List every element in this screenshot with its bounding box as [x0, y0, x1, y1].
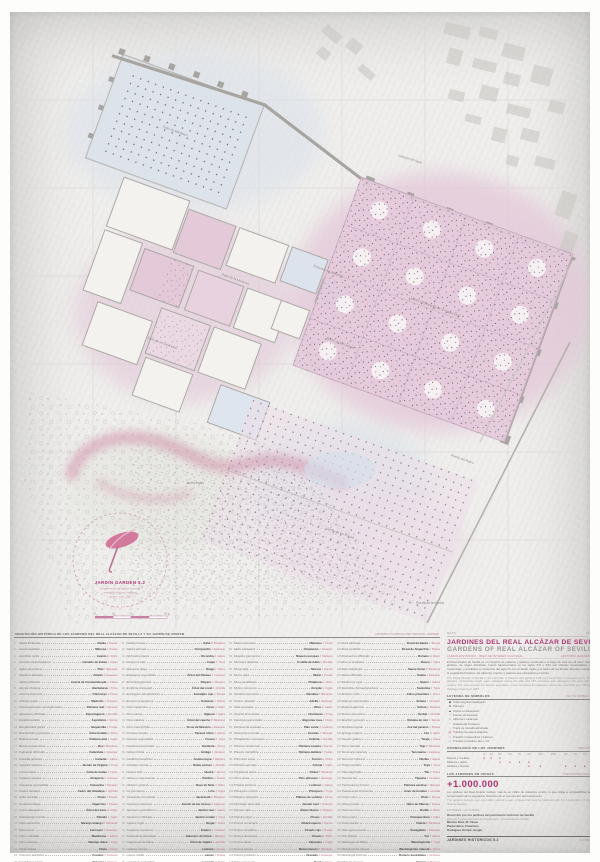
species-lists: VEGETACIÓN HISTÓRICA DE LOS JARDINES DEL… — [12, 632, 442, 850]
visitors-caption-es: Los jardines del Real Alcázar reciben má… — [447, 791, 590, 798]
info-panel: MAPA 05 JARDINES DEL REAL ALCÁZAR DE SEV… — [447, 632, 590, 851]
poster-subtitle: JARDÍN HISTÓRICO · BIEN DE INTERÉS CULTU… — [447, 655, 590, 660]
poster-title-es: JARDINES DEL REAL ALCÁZAR DE SEVILLA — [447, 639, 590, 646]
species-row: 75.Lavandula angustifoliaLavanda H. Reti… — [122, 858, 226, 862]
svg-text:vegetación histórica y trazado: vegetación histórica y trazados — [104, 592, 138, 595]
pond — [304, 452, 376, 488]
legend-title-es: LEYENDA DE SÍMBOLOS — [447, 694, 490, 698]
panel-kicker: MAPA 05 — [447, 632, 590, 637]
svg-text:Puerta de la Alcoba: Puerta de la Alcoba — [416, 601, 444, 605]
credits-label: AUTORES / AUTHORS — [447, 809, 590, 812]
species-column: 41.Dahlia pinnataDalia P. Banderas42.Dat… — [122, 640, 226, 862]
species-row: 35.Cordyline australisDrácena J. Marqués — [14, 858, 118, 862]
chronology-title-es: CRONOLOGÍA DE LOS JARDINES — [447, 746, 505, 750]
svg-text:los jardines del real alcázar: los jardines del real alcázar de sevilla — [100, 588, 140, 591]
svg-text:50 m: 50 m — [164, 612, 170, 616]
species-column: 1.Abelia floribundaAbelia J. Damas2.Acac… — [14, 640, 118, 862]
species-row: 115.Pyrus communisPeral J. Galera — [229, 858, 333, 862]
legend-title-en: KEY TO SYMBOLS — [567, 695, 590, 698]
legend-item-label: Trazado romántico del s. XX — [453, 739, 489, 743]
svg-text:Jardín Inglés: Jardín Inglés — [186, 481, 205, 485]
visitors-caption-en: The gardens receive over one million vis… — [447, 799, 590, 806]
paper-sheet: Patio de Banderas Patio de la Montería P… — [10, 12, 590, 853]
subtitle-left: JARDÍN HISTÓRICO · BIEN DE INTERÉS CULTU… — [447, 655, 523, 658]
legend-items: ■Árbol singular catalogado●Palmera▲Cipré… — [447, 700, 590, 743]
species-row: 155.Wisteria sinensisGlicinia J. Marqués — [337, 858, 441, 862]
svg-text:Callejón del Agua: Callejón del Agua — [398, 154, 423, 165]
visitors-header: LOS JARDINES EN CIFRAS VISITORS PER YEAR — [447, 772, 590, 778]
species-column: 121.Rosa banksiaeRosal de Banks J. Damas… — [337, 640, 441, 862]
legend-item: ▨Trazado romántico del s. XX — [447, 739, 590, 743]
species-column: 81.Malus domesticaManzano J. Flores82.Me… — [229, 640, 333, 862]
credits-name: Rodríguez Gómez, Sergio — [447, 829, 590, 833]
visitors-figure: +1.000.000 — [447, 779, 590, 790]
panel-footer: JARDINES HISTÓRICOS 5.2 E 1:800 — [447, 836, 590, 842]
subtitle-right: HISTORIC GARDEN — [561, 655, 590, 658]
legend-header: LEYENDA DE SÍMBOLOS KEY TO SYMBOLS — [447, 694, 590, 700]
chronology-row: Jardines y huertas·····●●·●●● — [447, 764, 590, 768]
chronology-table: XIXIIXIIIXIVXVXVIXVIIXVIIIXIXXXXXIRecint… — [447, 753, 590, 768]
species-header-es: VEGETACIÓN HISTÓRICA DE LOS JARDINES DEL… — [15, 632, 184, 636]
poster-title-en: GARDENS OF REAL ALCÁZAR OF SEVILLE — [447, 646, 590, 653]
footer-scale: E 1:800 — [580, 838, 590, 842]
svg-text:escala · scale 1:800: escala · scale 1:800 — [109, 596, 131, 599]
kicker-right: 05 — [586, 632, 590, 635]
svg-text:JARDÍN GARDEN 5.2: JARDÍN GARDEN 5.2 — [95, 580, 146, 585]
species-columns: 1.Abelia floribundaAbelia J. Damas2.Acac… — [12, 640, 442, 862]
poster: Patio de Banderas Patio de la Montería P… — [0, 0, 600, 862]
intro-paragraph-es: El Real Alcázar de Sevilla es un conjunt… — [447, 661, 590, 675]
species-list-header: VEGETACIÓN HISTÓRICA DE LOS JARDINES DEL… — [14, 632, 440, 638]
kicker-left: MAPA — [447, 632, 456, 635]
svg-text:Huerta del Retiro: Huerta del Retiro — [450, 453, 474, 465]
footer-series: JARDINES HISTÓRICOS 5.2 — [447, 838, 499, 842]
intro-paragraph-en: The Royal Alcázar of Seville is an ensem… — [447, 677, 590, 691]
species-header-en: HISTORIC PLANTING AND ORIGINAL GARDEN — [376, 632, 439, 636]
chronology-header: CRONOLOGÍA DE LOS JARDINES TIMELINE — [447, 746, 590, 752]
chronology-title-en: TIMELINE — [578, 747, 590, 750]
visitors-title-en: VISITORS PER YEAR — [563, 773, 590, 776]
site-plan: Patio de Banderas Patio de la Montería P… — [10, 12, 590, 630]
visitors-title-es: LOS JARDINES EN CIFRAS — [447, 772, 494, 776]
